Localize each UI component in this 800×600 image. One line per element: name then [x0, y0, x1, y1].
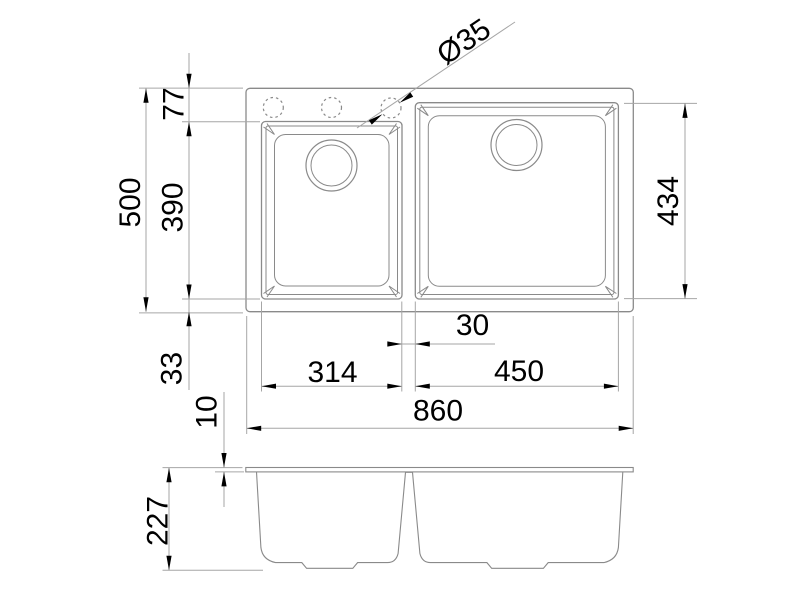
arrow-right-icon — [387, 341, 402, 346]
small-bowl-opening — [275, 135, 390, 287]
small-bowl — [262, 122, 403, 300]
drawing-canvas: 500 77 390 33 434 Ø35 30 — [0, 0, 800, 600]
dim-large-bowl-depth: 434 — [624, 103, 697, 298]
arrow-right-icon — [619, 426, 634, 431]
top-view — [246, 88, 633, 311]
arrow-down-icon — [186, 74, 191, 89]
dim-label-d35: Ø35 — [431, 12, 496, 71]
arrow-down-icon — [682, 284, 687, 299]
arrow-up-icon — [166, 468, 171, 483]
arrow-up-icon — [186, 312, 191, 327]
dim-label-500: 500 — [114, 177, 147, 227]
dim-label-77: 77 — [158, 87, 191, 120]
dim-overall-height: 227 — [142, 468, 264, 571]
small-bowl-corner-miters — [264, 124, 401, 298]
dim-large-bowl-width: 450 — [415, 302, 618, 392]
faucet-holes — [263, 98, 401, 119]
dim-label-33: 33 — [156, 352, 189, 385]
arrow-down-icon — [143, 297, 148, 312]
arrow-down-icon — [221, 453, 226, 468]
large-bowl-rim-inner — [420, 107, 614, 294]
dim-overall-width: 860 — [247, 316, 634, 434]
large-bowl-opening — [428, 116, 605, 287]
small-bowl-rim-outer — [262, 122, 403, 300]
large-bowl-drain-inner — [496, 125, 537, 166]
dim-small-bowl-width: 314 — [262, 302, 402, 392]
small-bowl-drain-outer — [306, 140, 357, 191]
arrow-left-icon — [415, 341, 430, 346]
faucet-hole-2 — [322, 98, 342, 118]
arrow-down-icon — [166, 556, 171, 571]
dim-label-450: 450 — [494, 355, 544, 388]
large-bowl-drain-outer — [491, 120, 542, 171]
dim-depth-chain: 77 390 33 — [156, 53, 261, 390]
arrow-down-icon — [186, 285, 191, 300]
dim-label-390: 390 — [157, 182, 190, 232]
sink-technical-drawing: 500 77 390 33 434 Ø35 30 — [0, 0, 800, 600]
dim-label-434: 434 — [652, 176, 685, 226]
arrow-right-icon — [387, 384, 402, 389]
small-bowl-drain-inner — [311, 145, 352, 186]
dim-label-314: 314 — [307, 356, 357, 389]
large-bowl-corner-miters — [417, 105, 616, 298]
arrow-left-icon — [415, 384, 430, 389]
large-bowl-rim-outer — [415, 103, 618, 299]
rim-profile — [246, 468, 633, 472]
faucet-hole-1 — [263, 98, 283, 118]
dim-label-30: 30 — [456, 309, 489, 342]
arrow-up-icon — [143, 88, 148, 103]
arrow-up-icon — [186, 122, 191, 137]
bowl-profile — [257, 472, 623, 568]
arrow-up-icon — [221, 472, 226, 487]
section-view — [246, 468, 633, 569]
dim-faucet-hole: Ø35 — [357, 12, 515, 128]
dim-label-227: 227 — [142, 496, 175, 546]
arrow-up-icon — [682, 103, 687, 118]
dim-rim-thickness: 10 — [191, 392, 245, 507]
arrow-left-icon — [262, 384, 277, 389]
dim-label-10: 10 — [191, 395, 224, 428]
small-bowl-rim-inner — [266, 126, 398, 295]
dim-label-860: 860 — [413, 395, 463, 428]
arrow-right-icon — [604, 384, 619, 389]
arrow-left-icon — [247, 426, 262, 431]
large-bowl — [415, 103, 618, 299]
dim-bowl-gap: 30 — [387, 302, 495, 392]
